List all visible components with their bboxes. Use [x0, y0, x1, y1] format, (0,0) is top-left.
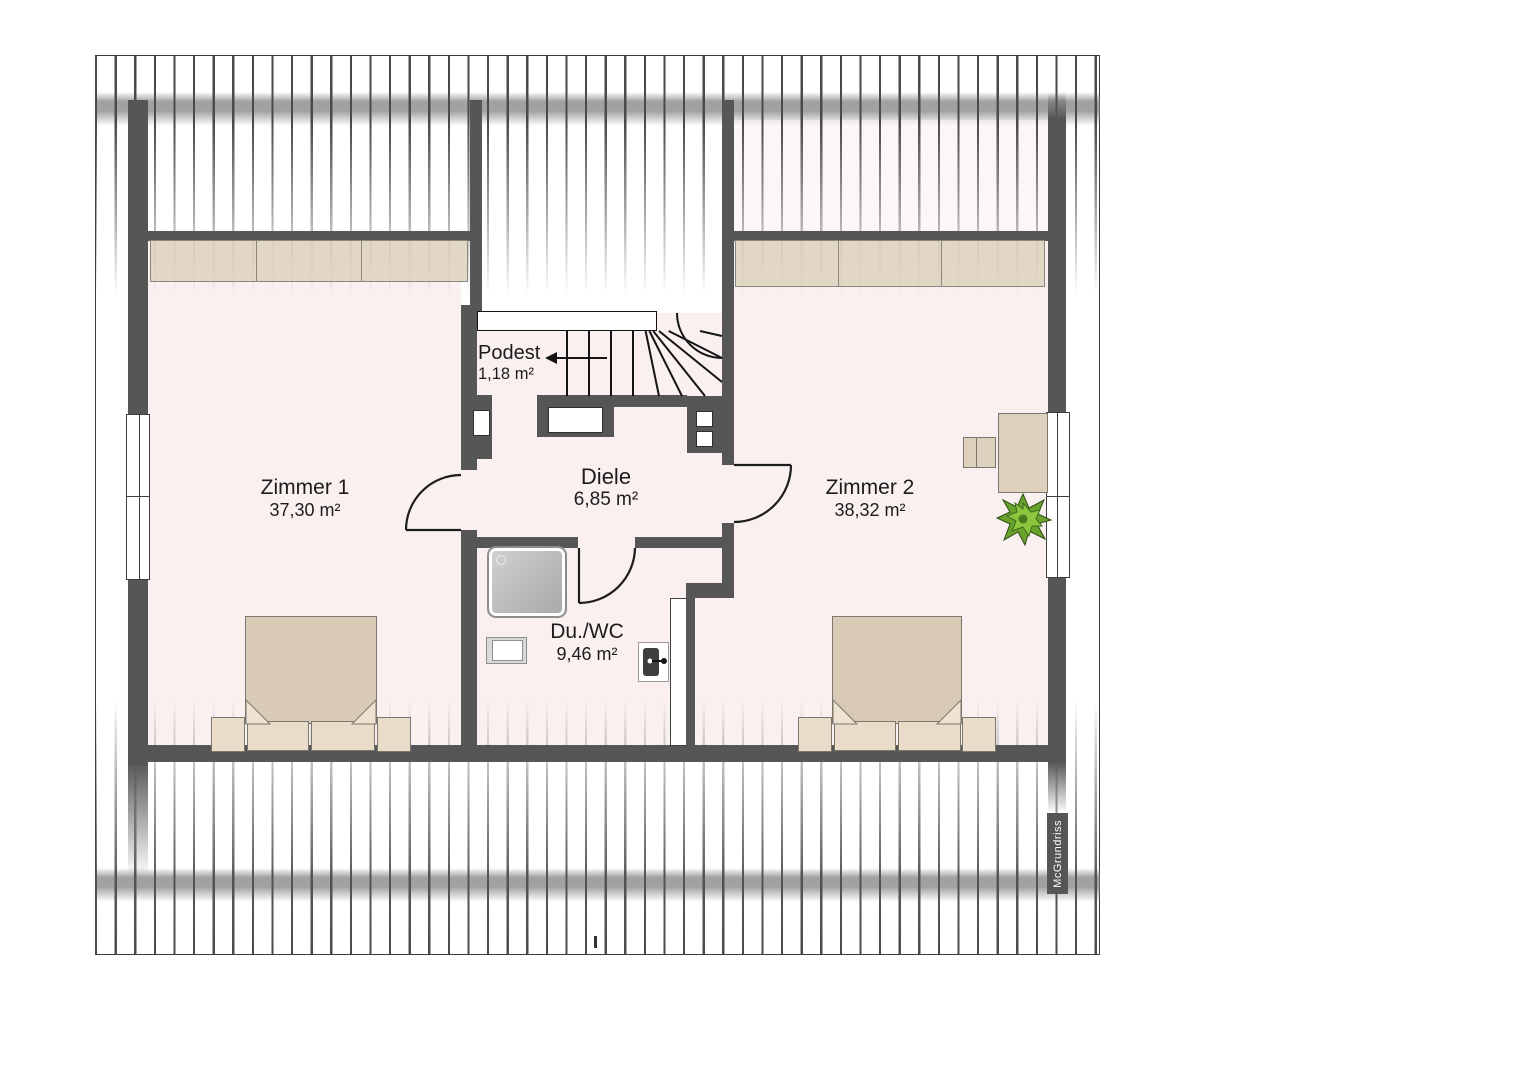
wall-niche-under-stairs [548, 407, 603, 433]
room-name: Du./WC [507, 620, 667, 644]
wall-duwc-zimmer2-divider [686, 598, 695, 746]
watermark-text: McGrundriss [1052, 820, 1064, 888]
wardrobe-zimmer2 [735, 240, 1045, 287]
room-label-diele: Diele 6,85 m² [526, 464, 686, 511]
wall-duwc-top-right [635, 537, 734, 548]
room-label-zimmer1: Zimmer 1 37,30 m² [225, 476, 385, 521]
wall-jog [686, 583, 734, 598]
room-area: 1,18 m² [478, 365, 558, 384]
room-area: 37,30 m² [225, 500, 385, 521]
bed-pillow [834, 721, 896, 751]
room-area: 9,46 m² [507, 644, 667, 665]
bed-duvet-zimmer1 [245, 616, 377, 724]
room-name: Zimmer 1 [225, 476, 385, 500]
wall-diele-east-lower [722, 523, 734, 585]
chair-backrest-line [976, 438, 977, 467]
wall-under-stairs-thin [614, 395, 687, 407]
bed-pillow [898, 721, 961, 751]
watermark-logo: McGrundriss [1047, 813, 1068, 894]
wall-right-fade-top [1048, 92, 1066, 118]
room-area: 6,85 m² [526, 489, 686, 511]
window-right-divider [1047, 496, 1069, 497]
floor-plan: Zimmer 1 37,30 m² Zimmer 2 38,32 m² Diel… [0, 0, 1528, 1080]
room-label-zimmer2: Zimmer 2 38,32 m² [790, 476, 950, 521]
desk [998, 413, 1048, 493]
wardrobe-section [736, 241, 839, 286]
wardrobe-section [839, 241, 942, 286]
nightstand [962, 717, 996, 752]
room-label-podest: Podest 1,18 m² [478, 342, 558, 384]
nightstand [377, 717, 411, 752]
wardrobe-section [257, 241, 363, 281]
wardrobe-zimmer1 [150, 240, 468, 282]
wall-right-fade-bottom [1048, 762, 1066, 813]
chimney-flue-1 [696, 411, 713, 427]
bed-duvet-zimmer2 [832, 616, 962, 724]
stairwell-wall-left [470, 100, 482, 313]
bed-pillow [247, 721, 309, 751]
wall-left-fade [128, 762, 148, 877]
room-name: Podest [478, 342, 558, 365]
stairs-landing [477, 311, 657, 331]
window-right-sash [1057, 413, 1058, 577]
room-name: Diele [526, 464, 686, 489]
wall-niche-left [473, 410, 490, 436]
chimney-flue-2 [696, 431, 713, 447]
nightstand [211, 717, 245, 752]
shower-drain [496, 555, 506, 565]
wardrobe-section [362, 241, 467, 281]
wardrobe-section [151, 241, 257, 281]
wardrobe-section [942, 241, 1044, 286]
window-left-sash [139, 415, 140, 579]
room-area: 38,32 m² [790, 500, 950, 521]
partition-installation-wall [670, 598, 687, 746]
room-label-duwc: Du./WC 9,46 m² [507, 620, 667, 665]
bed-pillow [311, 721, 375, 751]
nightstand [798, 717, 832, 752]
chair [963, 437, 996, 468]
window-left-divider [127, 496, 149, 497]
room-name: Zimmer 2 [790, 476, 950, 500]
wall-zimmer1-duwc-divider [461, 530, 477, 762]
window-right [1046, 412, 1070, 578]
window-left [126, 414, 150, 580]
